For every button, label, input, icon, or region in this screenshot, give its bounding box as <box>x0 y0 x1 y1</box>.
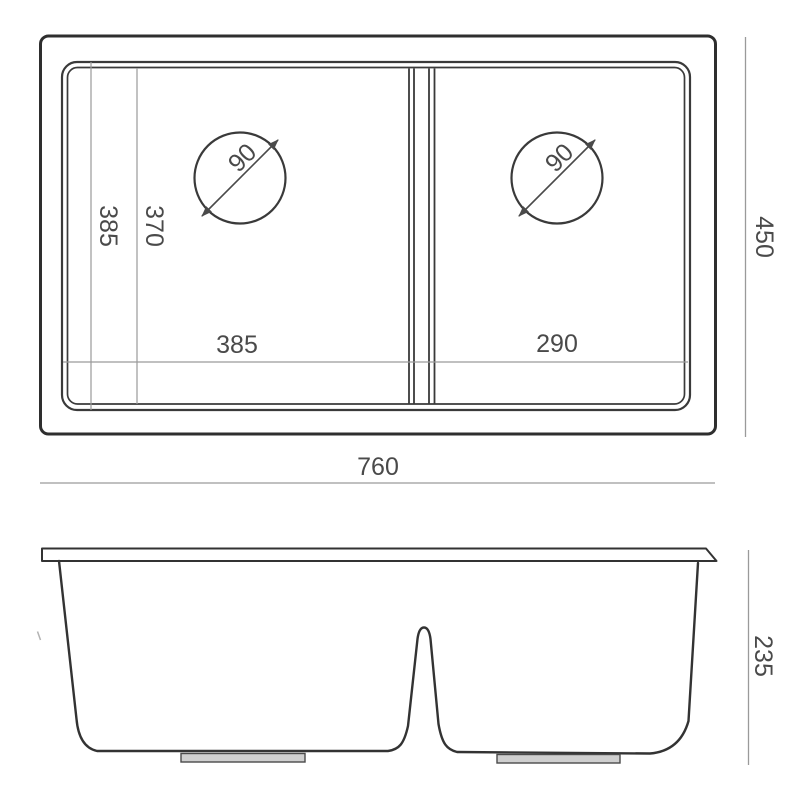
overall-height-label: 235 <box>749 635 777 677</box>
left-drain: 90 <box>195 133 286 224</box>
front-view: 235 <box>38 549 778 766</box>
front-rim-flange <box>42 549 717 562</box>
stray-mark <box>38 632 41 641</box>
overall-depth-label: 450 <box>750 216 778 258</box>
top-view: 90 90 385 370 385 290 760 450 <box>40 36 778 483</box>
overall-width-label: 760 <box>357 453 399 481</box>
right-drain-diameter-label: 90 <box>540 138 579 177</box>
right-foot-pad <box>497 755 620 764</box>
front-body-outline <box>59 561 698 754</box>
center-divider <box>409 69 435 405</box>
right-bowl-width-label: 290 <box>536 330 578 358</box>
right-drain: 90 <box>512 133 603 224</box>
bowl-outer-depth-label: 385 <box>94 205 122 247</box>
sink-technical-drawing: 90 90 385 370 385 290 760 450 <box>0 0 800 794</box>
left-bowl-width-label: 385 <box>216 331 258 359</box>
drawing-canvas: 90 90 385 370 385 290 760 450 <box>0 0 800 794</box>
bowl-inner-depth-label: 370 <box>140 205 168 247</box>
left-drain-diameter-label: 90 <box>223 138 262 177</box>
left-foot-pad <box>181 754 305 763</box>
